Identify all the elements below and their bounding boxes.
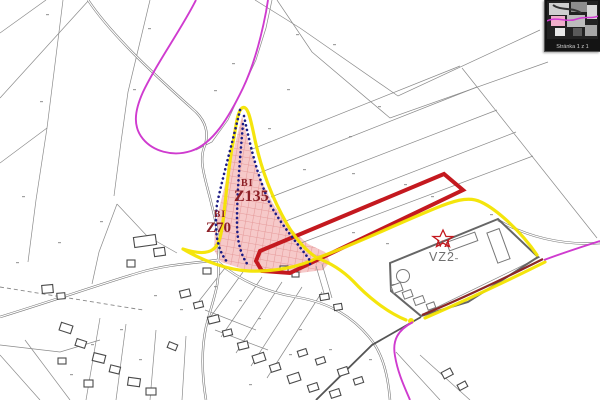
builtup-boundary-dark-red — [422, 259, 543, 315]
roads — [0, 0, 600, 400]
page-indicator: Stránka 1 z 1 — [545, 44, 600, 50]
zone-label-z70-code: Z70 — [206, 221, 231, 236]
parcel-lines — [0, 0, 597, 400]
minimap-thumbnail[interactable] — [547, 1, 598, 39]
cadastral-map — [0, 0, 600, 400]
map-canvas[interactable]: BI Z135 BI Z70 VZ VZ2 Stránka 1 z 1 — [0, 0, 600, 400]
minimap-panel[interactable]: Stránka 1 z 1 — [544, 0, 600, 52]
zone-label-vz-type: VZ — [437, 240, 451, 249]
zone-label-vz2-code: VZ2 — [429, 251, 455, 264]
footpath-dashed-line — [0, 287, 143, 310]
territory-boundary-magenta — [136, 0, 600, 400]
zone-label-z135-code: Z135 — [234, 189, 269, 205]
minimap-boundary-line — [547, 1, 598, 39]
